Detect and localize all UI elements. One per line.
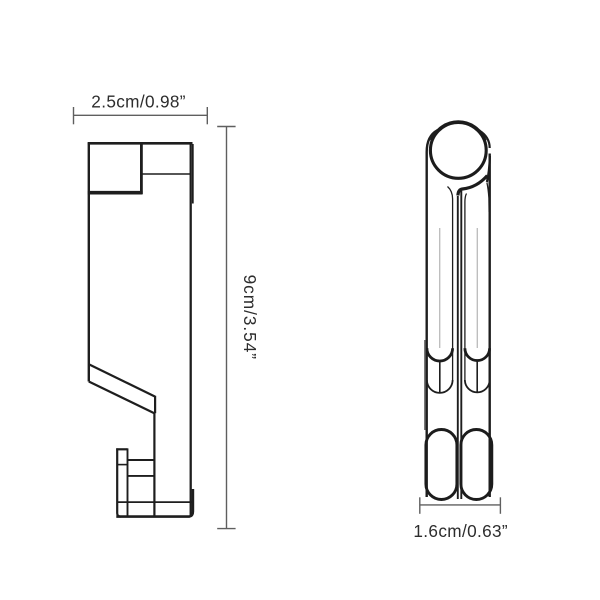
- svg-text:2.5cm/0.98”: 2.5cm/0.98”: [91, 92, 186, 112]
- svg-text:9cm/3.54”: 9cm/3.54”: [240, 275, 260, 360]
- svg-text:1.6cm/0.63”: 1.6cm/0.63”: [413, 521, 508, 541]
